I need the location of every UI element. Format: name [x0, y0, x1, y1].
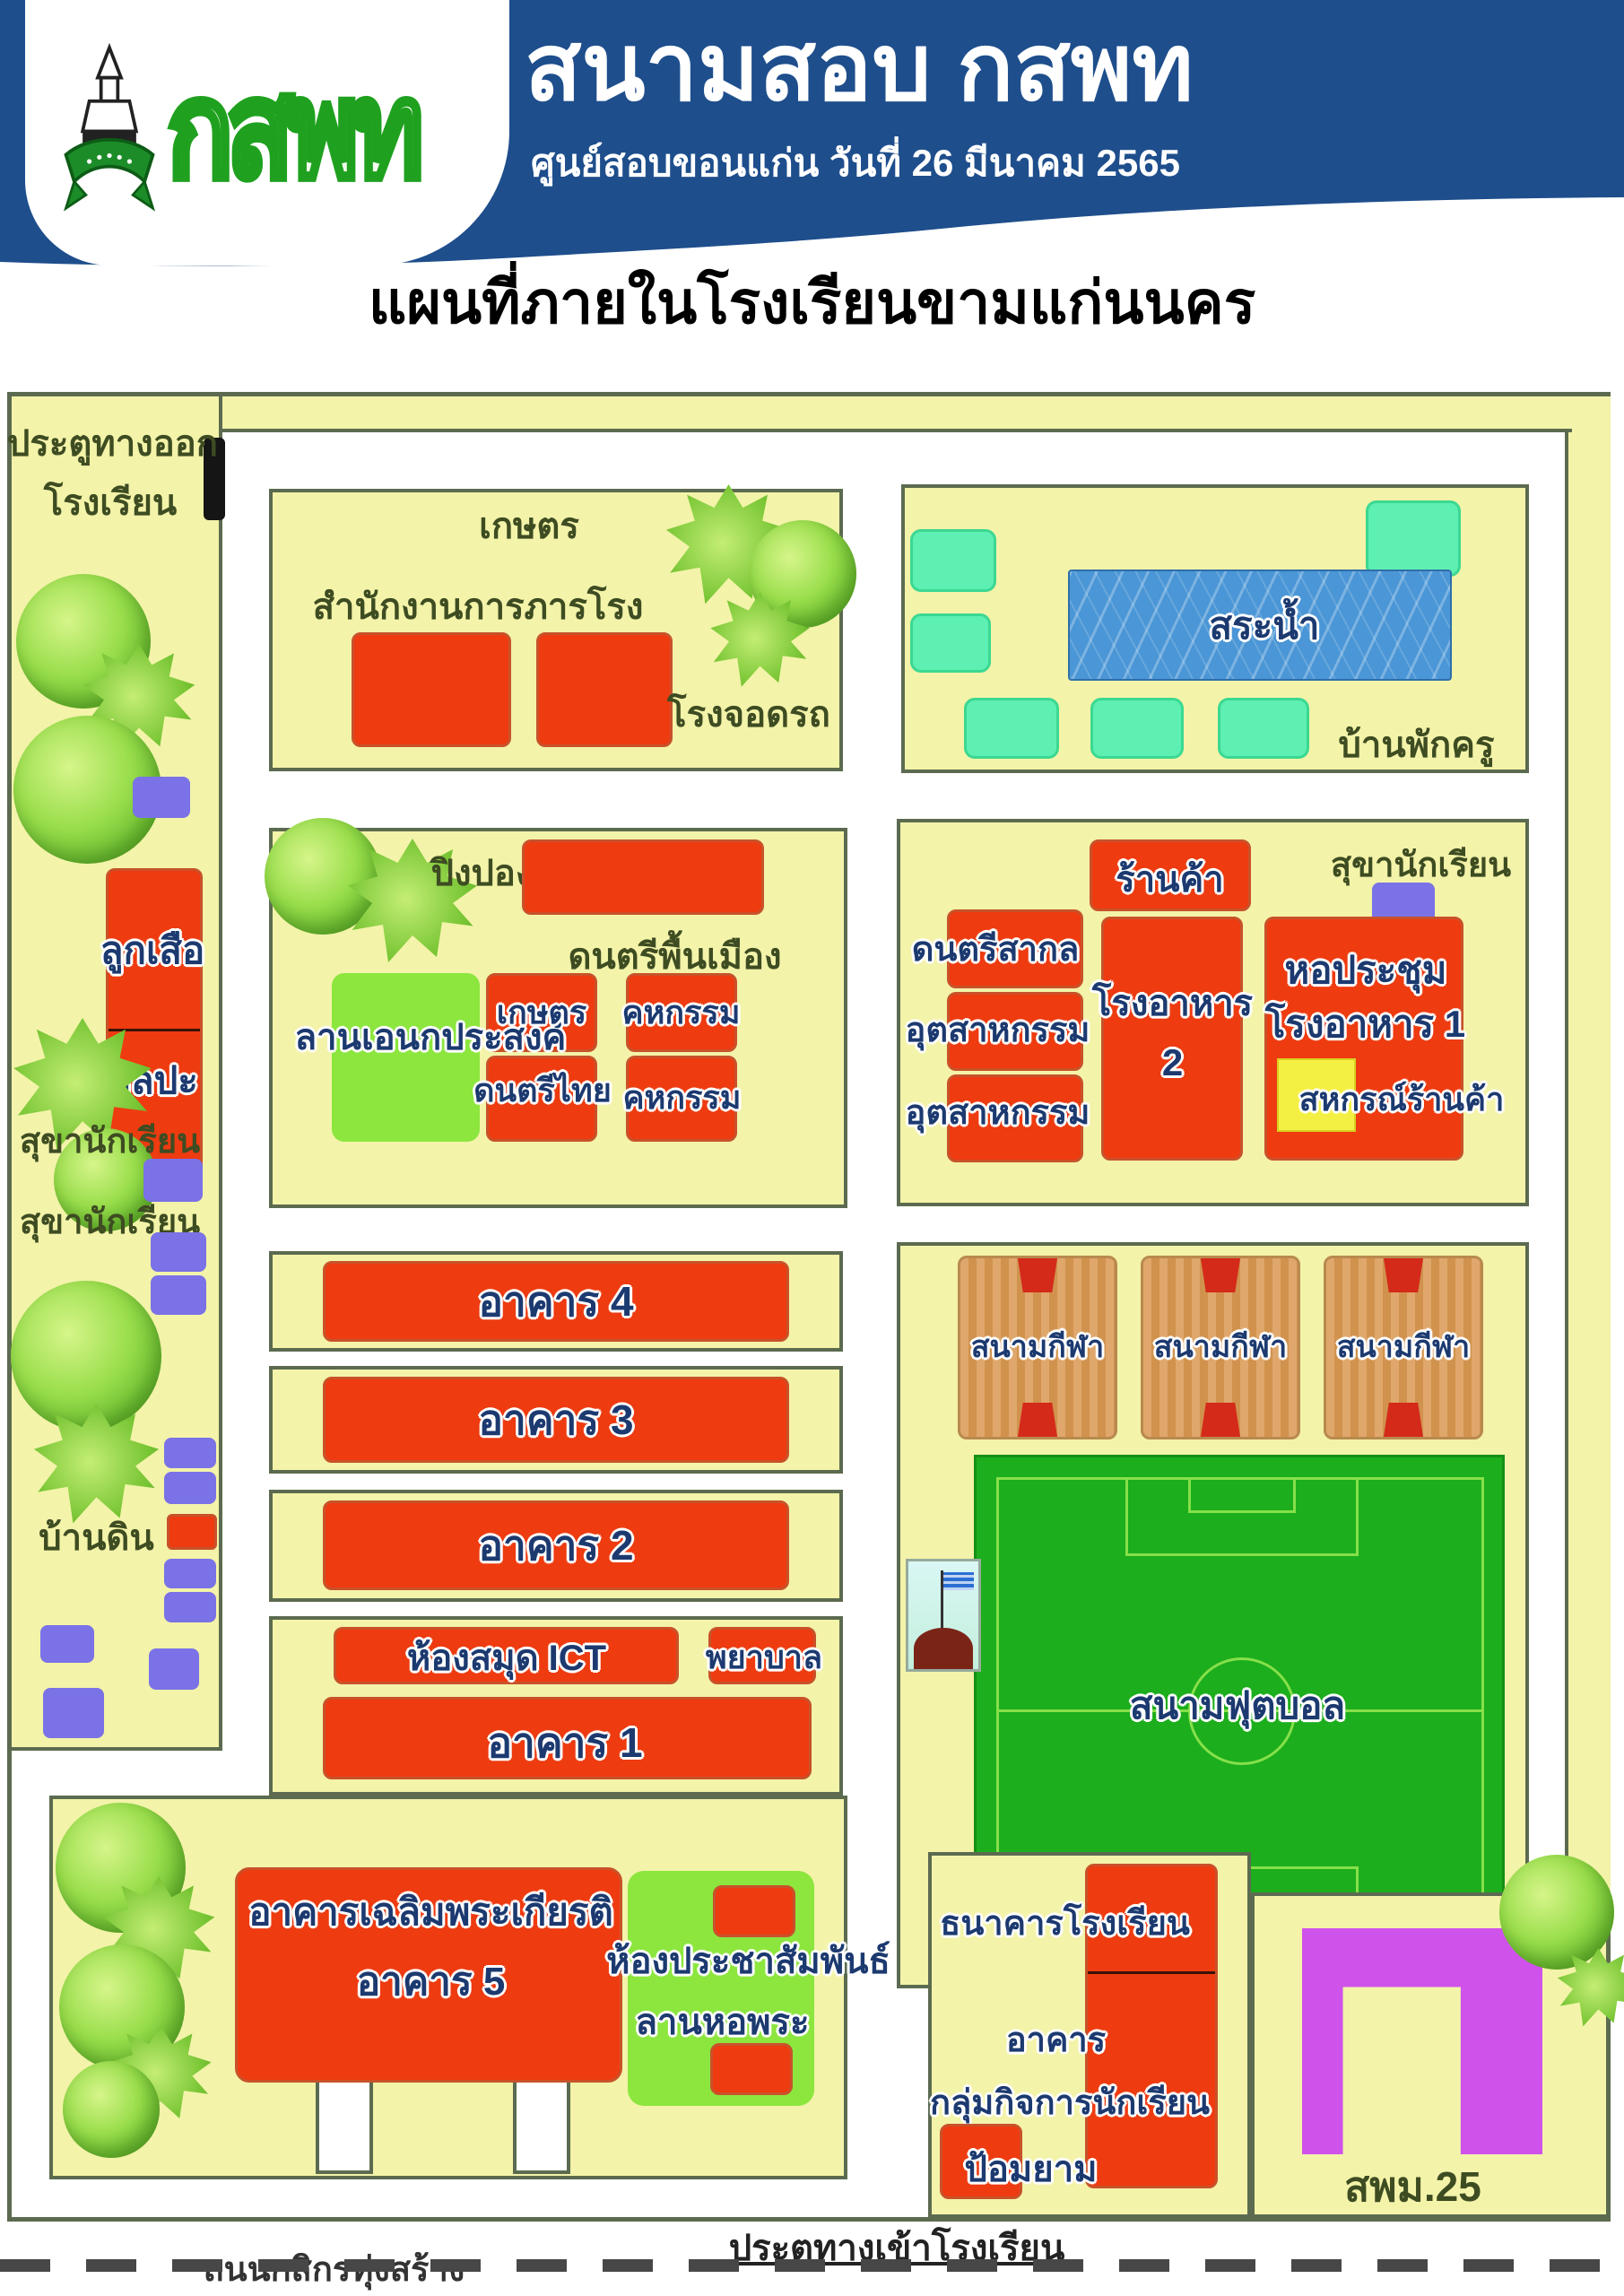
building-divider [1088, 1971, 1215, 1974]
sport-court3-label: สนามกีฬา [1324, 1326, 1483, 1370]
scouts-label: ลูกเสือ [49, 924, 256, 978]
janitor-office-label: สำนักงานการภารโรง [285, 581, 671, 633]
teacher-house-block [1366, 500, 1461, 577]
building4-label: อาคาร 4 [444, 1272, 668, 1332]
nurse-label: พยาบาล [689, 1634, 839, 1681]
page-title: แผนที่ภายในโรงเรียนขามแก่นนคร [0, 258, 1624, 347]
sport-court2-label: สนามกีฬา [1141, 1326, 1300, 1370]
shop-label: ร้านค้า [1096, 854, 1244, 906]
toilet-block [43, 1688, 104, 1738]
toilet-block [40, 1625, 94, 1663]
pond-label: สระน้ำ [1193, 599, 1336, 654]
building5-label-1: อาคารเฉลิมพระเกียรติ [240, 1885, 621, 1940]
flagpole-icon [906, 1559, 981, 1672]
spm25-label: สพม.25 [1334, 2157, 1491, 2217]
building5-label-2: อาคาร 5 [339, 1953, 523, 2011]
guard-post-label: ป้อมยาม [943, 2144, 1118, 2196]
teacher-house-block [910, 529, 996, 592]
toilet-block [133, 777, 190, 818]
university-crest-icon [59, 38, 160, 235]
toilet-block [151, 1232, 206, 1272]
home-econ2-label: คหกรรม [608, 1074, 756, 1121]
building-divider [109, 1029, 200, 1031]
toilet-block [164, 1472, 216, 1504]
student-affairs-label: กลุ่มกิจการนักเรียน [913, 2079, 1227, 2128]
building2-label: อาคาร 2 [444, 1516, 668, 1576]
buddha-court-label: ลานหอพระ [626, 1996, 819, 2048]
toilet-block [164, 1592, 216, 1622]
teacher-house-block [1090, 698, 1184, 759]
inner-border-top [215, 429, 1572, 432]
logo-capsule: กสพท [25, 0, 509, 265]
toilet-block [143, 1159, 203, 1202]
exit-gate-label-2: โรงเรียน [7, 477, 213, 529]
toilet-block [151, 1275, 206, 1315]
building-word-label: อาคาร [973, 2016, 1139, 2066]
buddha-hall-building [710, 2043, 793, 2095]
school-bank-label: ธนาคารโรงเรียน [933, 1900, 1197, 1949]
teacher-house-block [910, 613, 991, 673]
toilet-block [164, 1559, 216, 1588]
toilet-block [149, 1648, 199, 1690]
teacher-house-label: บ้านพักครู [1311, 719, 1522, 771]
field-goal-box [1188, 1477, 1296, 1513]
building5-leg [513, 2083, 570, 2174]
hall-label-1: หอประชุม [1281, 944, 1451, 998]
toilet-block [164, 1438, 216, 1468]
exit-gate-label-1: ประตูทางออก [7, 418, 213, 470]
building1-label: อาคาร 1 [453, 1713, 677, 1773]
canteen2-label-1: โรงอาหาร [1085, 978, 1260, 1030]
janitor-building [536, 632, 673, 747]
industry1-label: อุตสาหกรรม [892, 1006, 1103, 1056]
inner-border-right [1565, 429, 1568, 1892]
teacher-house-block [1218, 698, 1309, 759]
gsp-logo-text: กสพท [167, 43, 417, 218]
football-field-label: สนามฟุตบอล [1103, 1679, 1372, 1734]
header-title: สนามสอบ กสพท [525, 4, 1194, 135]
teacher-house-block [964, 698, 1059, 759]
building5-leg [316, 2083, 373, 2174]
agriculture-label: เกษตร [430, 500, 628, 552]
pingpong-building [522, 839, 764, 915]
header-subtitle: ศูนย์สอบขอนแก่น วันที่ 26 มีนาคม 2565 [531, 135, 1180, 191]
tree-icon [63, 2061, 160, 2158]
pr-room-label: ห้องประชาสัมพันธ์ [594, 1935, 903, 1987]
map-margin-right [1568, 396, 1611, 1892]
map-margin-top [12, 396, 1611, 430]
industry2-label: อุตสาหกรรม [892, 1089, 1103, 1138]
canteen2-label-2: 2 [1152, 1036, 1193, 1091]
coop-shop-label: สหกรณ์ร้านค้า [1281, 1076, 1523, 1123]
road-dashed-line [0, 2259, 1624, 2272]
building3-label: อาคาร 3 [444, 1390, 668, 1450]
earth-house-block [167, 1514, 217, 1550]
agriculture2-label: เกษตร [486, 989, 597, 1036]
tree-icon [11, 1281, 161, 1431]
home-econ1-label: คหกรรม [603, 989, 760, 1036]
pr-building [713, 1885, 795, 1937]
poster: กสพท สนามสอบ กสพท ศูนย์สอบขอนแก่น วันที่… [0, 0, 1624, 2296]
parking-label: โรงจอดรถ [659, 689, 838, 741]
earth-house-label: บ้านดิน [22, 1512, 170, 1564]
hall-label-2: โรงอาหาร 1 [1264, 997, 1466, 1052]
sport-court1-label: สนามกีฬา [958, 1326, 1117, 1370]
janitor-building [352, 632, 511, 747]
ict-library-label: ห้องสมุด ICT [359, 1632, 655, 1684]
intl-music-label: ดนตรีสากล [897, 926, 1094, 975]
